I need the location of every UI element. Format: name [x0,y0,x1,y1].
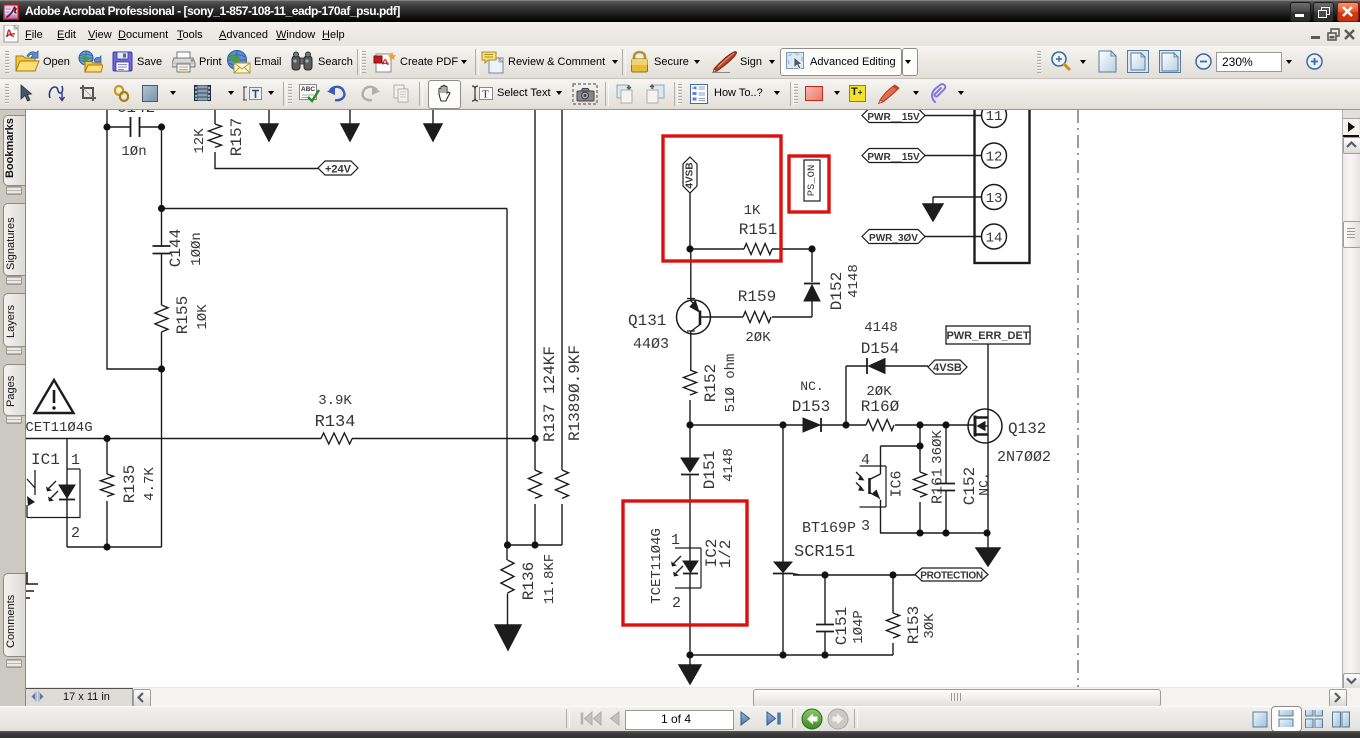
svg-text:3ØK: 3ØK [922,613,938,639]
svg-text:PS_ON: PS_ON [806,165,818,197]
svg-text:PROTECTION: PROTECTION [920,571,983,582]
svg-text:4: 4 [861,452,870,469]
svg-text:2: 2 [672,595,681,612]
svg-text:2N7ØØ2: 2N7ØØ2 [997,449,1051,466]
svg-text:BT169P: BT169P [802,520,856,537]
svg-text:R137 124KF: R137 124KF [541,346,559,442]
svg-text:D151: D151 [701,451,719,489]
svg-text:12K: 12K [192,128,208,154]
svg-text:SCR151: SCR151 [794,543,855,562]
svg-text:+24V: +24V [325,164,352,176]
svg-text:C144: C144 [167,229,185,267]
svg-text:44Ø3: 44Ø3 [633,336,669,353]
svg-text:R155: R155 [174,296,192,334]
svg-text:TCET11Ø4G: TCET11Ø4G [26,420,93,436]
svg-text:R157: R157 [228,118,246,156]
svg-text:Q131: Q131 [628,312,666,330]
svg-text:11: 11 [986,110,1003,125]
svg-text:4148: 4148 [721,448,737,482]
svg-text:IC1: IC1 [31,451,60,469]
svg-text:D153: D153 [792,398,830,416]
svg-text:R134: R134 [315,413,356,432]
svg-text:1ØK: 1ØK [195,304,211,330]
svg-text:PWR__15V: PWR__15V [867,112,920,123]
svg-text:C151: C151 [833,607,851,645]
svg-text:2: 2 [71,525,80,542]
svg-text:R152: R152 [702,364,720,402]
svg-text:PWR_ERR_DET: PWR_ERR_DET [946,330,1029,342]
svg-text:R16Ø: R16Ø [861,398,900,416]
svg-text:1Ø4P: 1Ø4P [851,610,867,644]
svg-text:Q132: Q132 [1008,420,1046,438]
svg-text:T: T [482,89,489,101]
svg-text:R151: R151 [739,221,777,239]
svg-text:4148: 4148 [846,264,862,298]
svg-text:IC6: IC6 [889,470,906,497]
svg-text:R1389Ø.9KF: R1389Ø.9KF [566,345,584,441]
svg-text:4148: 4148 [864,320,898,336]
svg-text:ABC: ABC [301,86,315,93]
svg-text:14: 14 [986,231,1003,247]
svg-text:PWR__15V: PWR__15V [867,152,920,163]
svg-text:R159: R159 [738,288,776,306]
svg-text:1Øn: 1Øn [121,144,146,160]
svg-text:1K: 1K [744,203,761,219]
svg-text:NC.: NC. [800,379,823,394]
svg-text:D152: D152 [828,272,846,310]
svg-text:1ØØn: 1ØØn [189,232,205,266]
svg-text:PWR_3ØV: PWR_3ØV [869,233,918,244]
svg-text:1: 1 [671,532,680,549]
svg-text:NC.: NC. [977,472,992,495]
svg-text:1/2: 1/2 [717,540,735,569]
svg-text:3.9K: 3.9K [318,393,352,409]
svg-text:12: 12 [986,150,1003,166]
svg-text:4VSB: 4VSB [933,362,962,374]
svg-text:11.8KF: 11.8KF [542,554,558,604]
svg-text:13: 13 [986,191,1003,207]
svg-text:2ØK: 2ØK [745,330,771,346]
svg-text:R153: R153 [905,606,923,644]
svg-text:4VSB: 4VSB [685,162,696,188]
svg-text:R135: R135 [121,465,139,503]
svg-text:51Ø ohm: 51Ø ohm [723,354,739,413]
svg-text:C142: C142 [117,110,155,117]
svg-text:D154: D154 [861,340,899,358]
svg-text:4.7K: 4.7K [142,467,158,501]
svg-text:R136: R136 [520,562,538,600]
svg-text:1: 1 [71,452,80,469]
svg-text:3: 3 [861,518,870,535]
svg-text:36ØK: 36ØK [930,430,946,464]
svg-text:TCET11Ø4G: TCET11Ø4G [649,528,665,604]
svg-text:R161: R161 [930,468,947,504]
